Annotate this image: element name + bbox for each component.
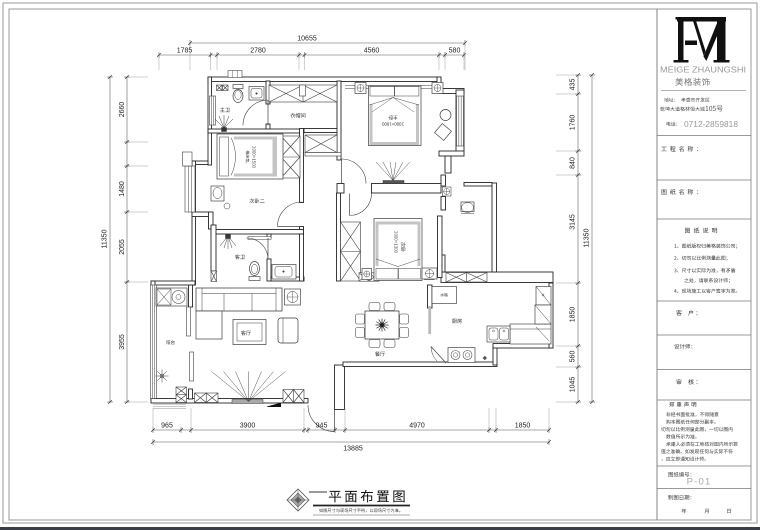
svg-text:560: 560	[570, 351, 577, 363]
svg-text:10655: 10655	[297, 36, 317, 43]
svg-text:11350: 11350	[584, 228, 591, 247]
svg-text:3900: 3900	[240, 423, 256, 430]
svg-text:840: 840	[570, 157, 577, 169]
svg-text:1850: 1850	[515, 423, 531, 430]
svg-text:945: 945	[316, 423, 328, 430]
svg-text:2660: 2660	[119, 102, 126, 118]
svg-text:2780: 2780	[250, 48, 266, 55]
svg-text:4560: 4560	[364, 48, 380, 55]
svg-text:965: 965	[161, 423, 173, 430]
svg-text:1045: 1045	[570, 377, 577, 393]
svg-text:1850: 1850	[570, 307, 577, 323]
svg-text:1760: 1760	[570, 115, 577, 131]
svg-text:2055: 2055	[119, 239, 126, 255]
svg-text:1480: 1480	[119, 181, 126, 197]
svg-text:0712-2859818: 0712-2859818	[684, 119, 738, 129]
svg-text:13885: 13885	[343, 446, 363, 453]
svg-text:MEIGE ZHAUNGSHI: MEIGE ZHAUNGSHI	[660, 66, 746, 75]
svg-text:580: 580	[449, 48, 461, 55]
svg-text:P-01: P-01	[687, 477, 712, 488]
svg-text:3145: 3145	[570, 214, 577, 230]
svg-text:3955: 3955	[119, 334, 126, 350]
svg-text:11350: 11350	[102, 229, 109, 248]
svg-text:4970: 4970	[409, 423, 425, 430]
svg-text:435: 435	[570, 79, 577, 91]
